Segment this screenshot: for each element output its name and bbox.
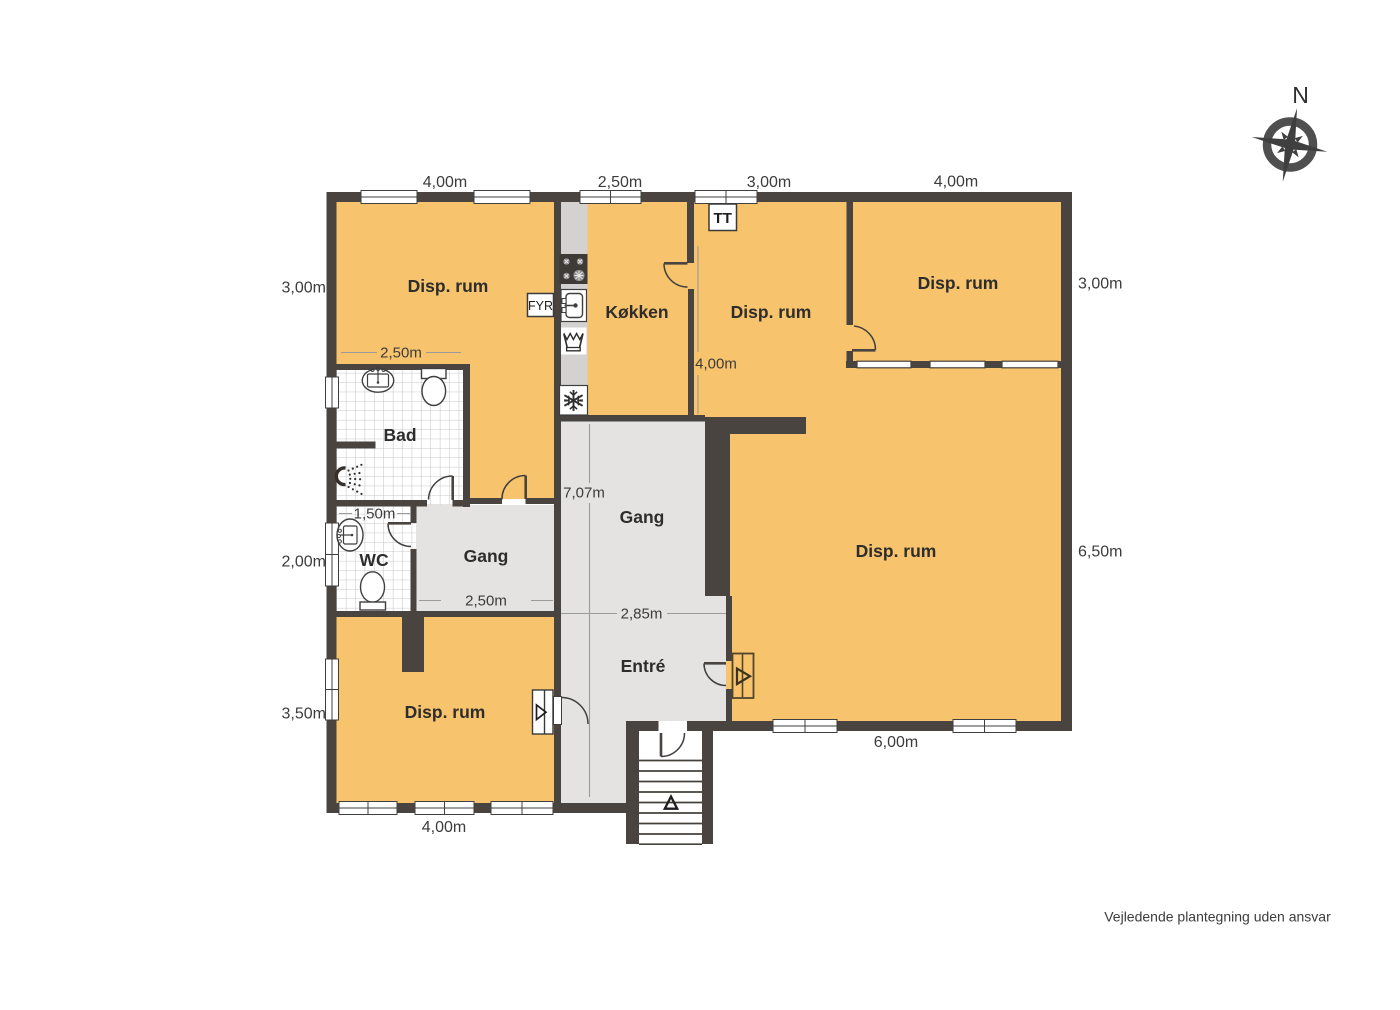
svg-text:TT: TT	[714, 210, 732, 227]
svg-text:Bad: Bad	[383, 425, 416, 445]
svg-text:Disp. rum: Disp. rum	[918, 273, 999, 293]
svg-text:3,00m: 3,00m	[282, 280, 326, 297]
svg-text:Disp. rum: Disp. rum	[405, 702, 486, 722]
svg-text:6,00m: 6,00m	[874, 734, 918, 751]
svg-text:Køkken: Køkken	[605, 302, 668, 322]
svg-text:3,00m: 3,00m	[747, 174, 791, 191]
svg-text:2,50m: 2,50m	[380, 345, 422, 362]
svg-text:2,50m: 2,50m	[465, 593, 507, 610]
svg-text:4,00m: 4,00m	[423, 174, 467, 191]
svg-text:Disp. rum: Disp. rum	[731, 302, 812, 322]
svg-text:Gang: Gang	[464, 546, 509, 566]
svg-text:1,50m: 1,50m	[354, 506, 396, 523]
svg-text:N: N	[1292, 82, 1309, 108]
svg-text:Vejledende plantegning uden an: Vejledende plantegning uden ansvar	[1104, 909, 1331, 925]
svg-text:7,07m: 7,07m	[563, 485, 605, 502]
svg-text:WC: WC	[359, 550, 389, 570]
svg-text:3,00m: 3,00m	[1078, 276, 1122, 293]
svg-text:3,50m: 3,50m	[282, 706, 326, 723]
svg-text:2,00m: 2,00m	[282, 554, 326, 571]
svg-text:4,00m: 4,00m	[695, 356, 737, 373]
svg-text:6,50m: 6,50m	[1078, 544, 1122, 561]
svg-text:Entré: Entré	[621, 656, 666, 676]
svg-text:2,85m: 2,85m	[621, 606, 663, 623]
svg-text:Disp. rum: Disp. rum	[856, 541, 937, 561]
svg-text:2,50m: 2,50m	[598, 174, 642, 191]
svg-text:4,00m: 4,00m	[422, 819, 466, 836]
svg-text:FYR: FYR	[528, 299, 553, 313]
svg-text:4,00m: 4,00m	[934, 174, 978, 191]
svg-text:Gang: Gang	[620, 507, 665, 527]
svg-text:Disp. rum: Disp. rum	[408, 276, 489, 296]
